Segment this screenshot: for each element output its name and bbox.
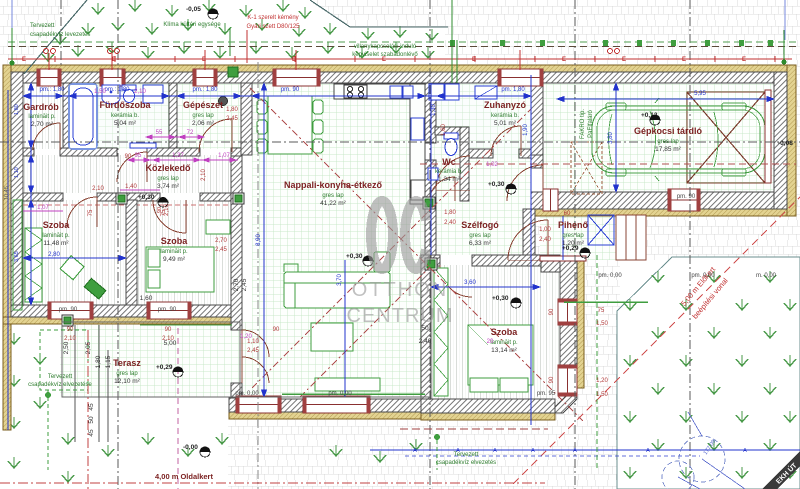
svg-text:csapadékvíz elvezetés: csapadékvíz elvezetés [436,460,496,466]
svg-text:4,00 m Oldalkert: 4,00 m Oldalkert [155,472,213,481]
svg-text:45: 45 [88,429,95,437]
svg-text:1,80: 1,80 [14,104,20,115]
svg-text:1,90: 1,90 [523,124,529,136]
svg-text:-0,05: -0,05 [186,6,201,13]
svg-text:+0,30: +0,30 [488,181,505,188]
svg-text:lamināit p.: lamināit p. [160,249,188,255]
svg-text:Szoba: Szoba [43,220,70,230]
svg-text:1,20: 1,20 [240,334,252,340]
svg-text:pm. 90: pm. 90 [281,87,300,93]
svg-text:5,04 m²: 5,04 m² [114,120,137,127]
svg-text:pm. 0,00: pm. 0,00 [328,391,352,397]
svg-text:kerámia b.: kerámia b. [435,169,463,175]
svg-text:pm. 95: pm. 95 [537,391,556,397]
svg-text:9,49 m²: 9,49 m² [163,256,186,263]
svg-text:2,45: 2,45 [241,278,248,291]
svg-text:8,90: 8,90 [256,234,262,246]
svg-text:A: A [646,448,650,454]
svg-text:Tervezett: Tervezett [30,23,55,29]
svg-text:45: 45 [88,403,95,411]
svg-text:1,80: 1,80 [226,107,238,113]
svg-text:A: A [573,448,577,454]
svg-text:E: E [112,57,116,63]
svg-text:pm. 90: pm. 90 [158,307,177,313]
svg-text:E: E [742,57,746,63]
svg-text:Wc: Wc [442,157,456,167]
svg-text:villanykapcsolási induló: villanykapcsolási induló [354,44,417,50]
svg-text:95: 95 [135,153,142,159]
svg-text:Közlekedő: Közlekedő [145,163,191,173]
svg-text:2,06 m²: 2,06 m² [192,120,215,127]
svg-text:3,70: 3,70 [337,274,343,286]
svg-text:20: 20 [487,339,494,345]
svg-text:K-1 szerelt kémény: K-1 szerelt kémény [247,15,298,21]
svg-text:+0,30: +0,30 [138,194,155,201]
svg-text:Szoba: Szoba [161,236,188,246]
svg-text:Terasz: Terasz [113,358,141,368]
svg-text:CENTRUM: CENTRUM [347,305,454,327]
svg-text:gres lap: gres lap [469,233,491,239]
svg-text:2,40: 2,40 [539,237,551,243]
svg-text:10,45: 10,45 [4,186,10,200]
svg-text:+0,29: +0,29 [562,245,579,252]
svg-text:Szélfogó: Szélfogó [461,220,499,230]
svg-text:Szoba: Szoba [491,327,518,337]
svg-text:E: E [202,57,206,63]
svg-text:1,30: 1,30 [431,104,437,116]
svg-text:3,65: 3,65 [14,251,20,262]
svg-text:1,34 m²: 1,34 m² [438,176,461,183]
svg-text:2,10: 2,10 [201,169,207,181]
svg-text:E: E [22,57,26,63]
svg-text:Pihenő: Pihenő [558,220,589,230]
svg-text:1,02: 1,02 [486,162,498,168]
svg-text:60: 60 [564,211,571,217]
svg-text:csapadékvíz elvezetése: csapadékvíz elvezetése [28,382,92,388]
svg-text:FAKRO tip.: FAKRO tip. [580,109,586,139]
svg-text:2,10: 2,10 [64,336,76,342]
svg-text:1,37: 1,37 [172,153,184,159]
svg-text:pm. 90: pm. 90 [59,307,78,313]
svg-text:1,20: 1,20 [596,378,608,384]
svg-text:képviselet szabadonlévő: képviselet szabadonlévő [352,52,418,58]
svg-text:gres lap: gres lap [116,371,138,377]
svg-text:90: 90 [125,154,132,160]
svg-text:2,10: 2,10 [92,186,104,192]
svg-text:A: A [456,448,460,454]
svg-text:pm. 90: pm. 90 [677,194,696,200]
svg-text:90: 90 [273,327,280,333]
svg-text:OTTHON: OTTHON [352,279,448,301]
svg-text:41,22 m²: 41,22 m² [320,200,346,207]
svg-text:+0,29: +0,29 [156,364,173,371]
svg-text:5,01 m²: 5,01 m² [494,120,517,127]
svg-text:1,15: 1,15 [105,355,112,368]
svg-text:pm. 0,00: pm. 0,00 [691,273,715,279]
svg-text:E: E [562,57,566,63]
svg-text:3,60: 3,60 [464,280,476,286]
svg-text:1,60: 1,60 [140,295,153,302]
svg-text:A: A [413,448,417,454]
svg-text:lamināit p.: lamināit p. [490,340,518,346]
svg-text:gres lap: gres lap [322,193,344,199]
svg-text:2,45: 2,45 [226,116,238,122]
svg-text:E: E [472,57,476,63]
svg-text:11,48 m²: 11,48 m² [43,240,69,247]
svg-text:gres lap: gres lap [562,233,584,239]
svg-text:pm. 0,00: pm. 0,00 [598,273,622,279]
svg-text:A: A [743,448,747,454]
svg-text:6,33 m²: 6,33 m² [469,240,492,247]
svg-text:5,00: 5,00 [164,340,177,347]
svg-text:17,85 m²: 17,85 m² [655,146,681,153]
svg-text:50: 50 [88,416,95,424]
svg-text:pm.: 1,80: pm.: 1,80 [192,87,218,93]
svg-text:2,05: 2,05 [85,341,92,354]
svg-text:E: E [622,57,626,63]
svg-text:kerámia b.: kerámia b. [111,113,139,119]
svg-text:gres lap: gres lap [157,176,179,182]
svg-text:2,70: 2,70 [233,278,240,291]
svg-text:75: 75 [161,209,167,216]
svg-text:1,50: 1,50 [94,89,106,95]
svg-text:1,07: 1,07 [218,153,230,159]
svg-text:csapadékvíz levezetés: csapadékvíz levezetés [30,32,90,38]
svg-text:Gépkocsi tárdló: Gépkocsi tárdló [634,126,703,136]
svg-text:+0,30: +0,30 [346,253,363,260]
svg-text:90: 90 [67,327,74,333]
svg-text:pm.: 1,80: pm.: 1,80 [39,87,65,93]
svg-text:+0,30: +0,30 [492,295,509,302]
svg-text:-0,08: -0,08 [778,140,793,147]
svg-text:pm. 1,80: pm. 1,80 [501,87,525,93]
svg-text:1,60: 1,60 [441,124,447,136]
svg-text:Gépészet: Gépészet [183,100,223,110]
svg-text:2,70 m²: 2,70 m² [31,121,54,128]
svg-text:1,40: 1,40 [125,184,137,190]
svg-text:PaElfaláró: PaElfaláró [588,109,594,137]
svg-text:Gyári szett D80/125: Gyári szett D80/125 [246,24,300,30]
svg-text:1,07: 1,07 [37,205,49,211]
svg-text:2,50: 2,50 [63,341,70,354]
svg-text:1,50: 1,50 [596,321,608,327]
svg-text:1,50: 1,50 [596,392,608,398]
svg-text:2,45: 2,45 [215,247,227,253]
svg-text:2,45: 2,45 [247,348,259,354]
svg-text:Klíma kültéri egysége: Klíma kültéri egysége [163,22,221,28]
svg-text:2,10: 2,10 [134,89,146,95]
svg-text:m. 0,00: m. 0,00 [756,273,777,279]
svg-text:A: A [531,448,535,454]
svg-text:gres lap: gres lap [657,139,679,145]
svg-text:13,14 m²: 13,14 m² [491,347,517,354]
svg-text:Tervezett: Tervezett [48,374,73,380]
svg-text:A: A [493,448,497,454]
svg-text:2,80: 2,80 [48,252,60,258]
svg-text:E: E [292,57,296,63]
svg-text:Nappali-konyha-étkező: Nappali-konyha-étkező [284,180,383,190]
svg-text:1,10: 1,10 [14,167,20,178]
svg-text:90: 90 [549,376,555,383]
svg-text:gres lap: gres lap [192,113,214,119]
svg-text:Fürdőszoba: Fürdőszoba [100,100,152,110]
svg-text:75: 75 [598,308,605,314]
svg-text:3,74 m²: 3,74 m² [157,183,180,190]
svg-text:Zuhanyzó: Zuhanyzó [484,100,527,110]
svg-text:72: 72 [187,130,194,136]
svg-text:kerámia b.: kerámia b. [491,113,519,119]
svg-text:lamināit p.: lamināit p. [42,233,70,239]
svg-text:pm.: 1,80: pm.: 1,80 [104,87,130,93]
svg-text:1,80: 1,80 [444,210,456,216]
svg-text:5,95: 5,95 [694,91,706,97]
svg-text:75: 75 [88,209,94,216]
svg-text:1,00: 1,00 [539,227,551,233]
svg-text:2,40: 2,40 [444,220,456,226]
svg-text:2,40: 2,40 [419,338,432,345]
svg-text:3,80: 3,80 [608,132,614,144]
svg-text:12,10 m²: 12,10 m² [114,378,140,385]
svg-text:pm. 0,00: pm. 0,00 [235,391,259,397]
svg-text:-0,00: -0,00 [183,444,198,451]
svg-text:E: E [682,57,686,63]
svg-text:90: 90 [165,327,172,333]
svg-text:90: 90 [549,308,555,315]
svg-text:lamināit p.: lamināit p. [28,114,56,120]
svg-text:1,80: 1,80 [95,355,102,368]
svg-text:55: 55 [156,130,163,136]
svg-text:Gardrób: Gardrób [23,102,59,112]
svg-text:2,70: 2,70 [215,238,227,244]
